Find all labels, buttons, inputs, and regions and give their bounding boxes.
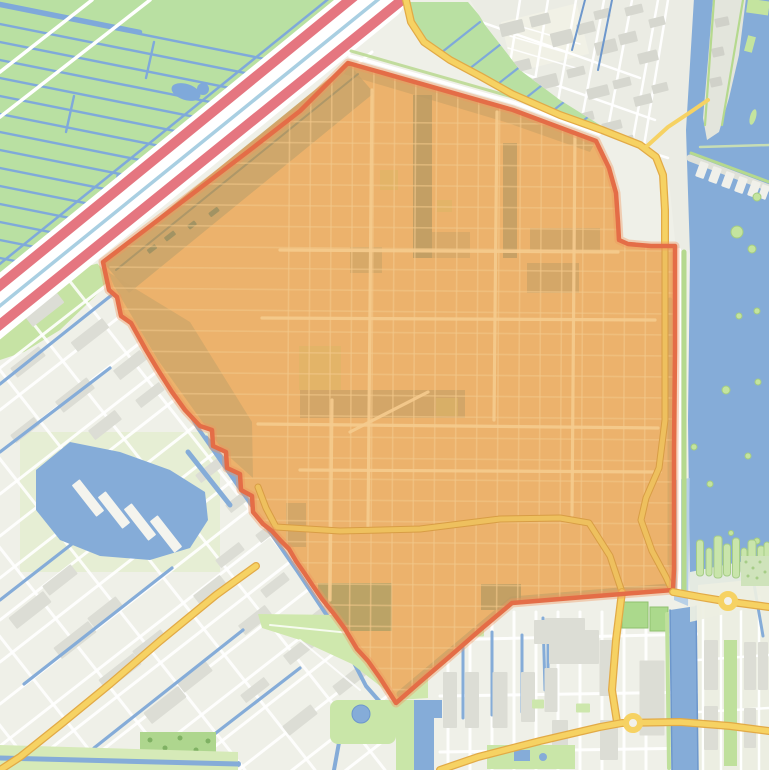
island	[707, 481, 713, 487]
island	[748, 245, 756, 253]
island	[722, 386, 730, 394]
pond	[352, 705, 370, 723]
housing-block	[545, 668, 558, 712]
island	[691, 444, 697, 450]
housing-block	[493, 672, 508, 728]
map-canvas[interactable]	[0, 0, 769, 770]
island	[754, 308, 760, 314]
br-block	[744, 642, 756, 690]
marsh-finger	[706, 548, 712, 576]
island	[745, 453, 751, 459]
housing-block	[443, 672, 457, 728]
canal-bank-green	[396, 700, 414, 770]
trees	[148, 738, 153, 743]
trees	[178, 736, 183, 741]
marsh-finger	[714, 536, 722, 578]
marsh-quay-dots	[752, 567, 755, 570]
south-canal	[670, 606, 698, 770]
marsh-quay-dots	[764, 571, 767, 574]
tip-canal-south	[414, 703, 434, 770]
dark-block	[527, 263, 579, 293]
se-pond	[514, 750, 530, 761]
island	[731, 226, 743, 238]
main-streets	[300, 470, 660, 472]
se-pond2	[539, 753, 547, 761]
dark-block	[432, 232, 470, 258]
roundabout	[721, 594, 735, 608]
housing-block	[465, 672, 479, 728]
light-patch	[436, 398, 458, 416]
light-patch	[437, 200, 452, 212]
main-streets	[262, 318, 655, 320]
marsh-quay-dots	[747, 575, 750, 578]
island	[753, 193, 761, 201]
polder-pond2	[197, 83, 209, 95]
br-green-median	[724, 640, 737, 766]
light-patch	[380, 170, 398, 190]
trees	[163, 746, 168, 751]
marsh-finger	[724, 544, 731, 576]
br-block	[758, 642, 768, 690]
map-viewport[interactable]	[0, 0, 769, 770]
main-streets	[280, 250, 618, 252]
marsh-quay-dots	[745, 561, 748, 564]
se-greens	[532, 700, 544, 709]
marsh-quay-dots	[759, 561, 762, 564]
marsh-quay-dots	[756, 577, 759, 580]
marsh-finger	[697, 540, 704, 576]
trees	[206, 739, 211, 744]
br-block	[704, 640, 718, 690]
island	[755, 379, 761, 385]
housing-block	[545, 618, 585, 636]
marsh-finger	[733, 538, 740, 578]
island	[736, 313, 742, 319]
roundabout	[626, 716, 640, 730]
housing-block	[521, 672, 535, 722]
sports-field	[622, 602, 648, 628]
se-greens	[576, 704, 590, 713]
dark-block	[503, 143, 517, 258]
main-streets	[330, 400, 332, 600]
canal-bank-green	[667, 614, 669, 768]
island	[729, 531, 734, 536]
layer-harbor-water	[686, 0, 769, 600]
